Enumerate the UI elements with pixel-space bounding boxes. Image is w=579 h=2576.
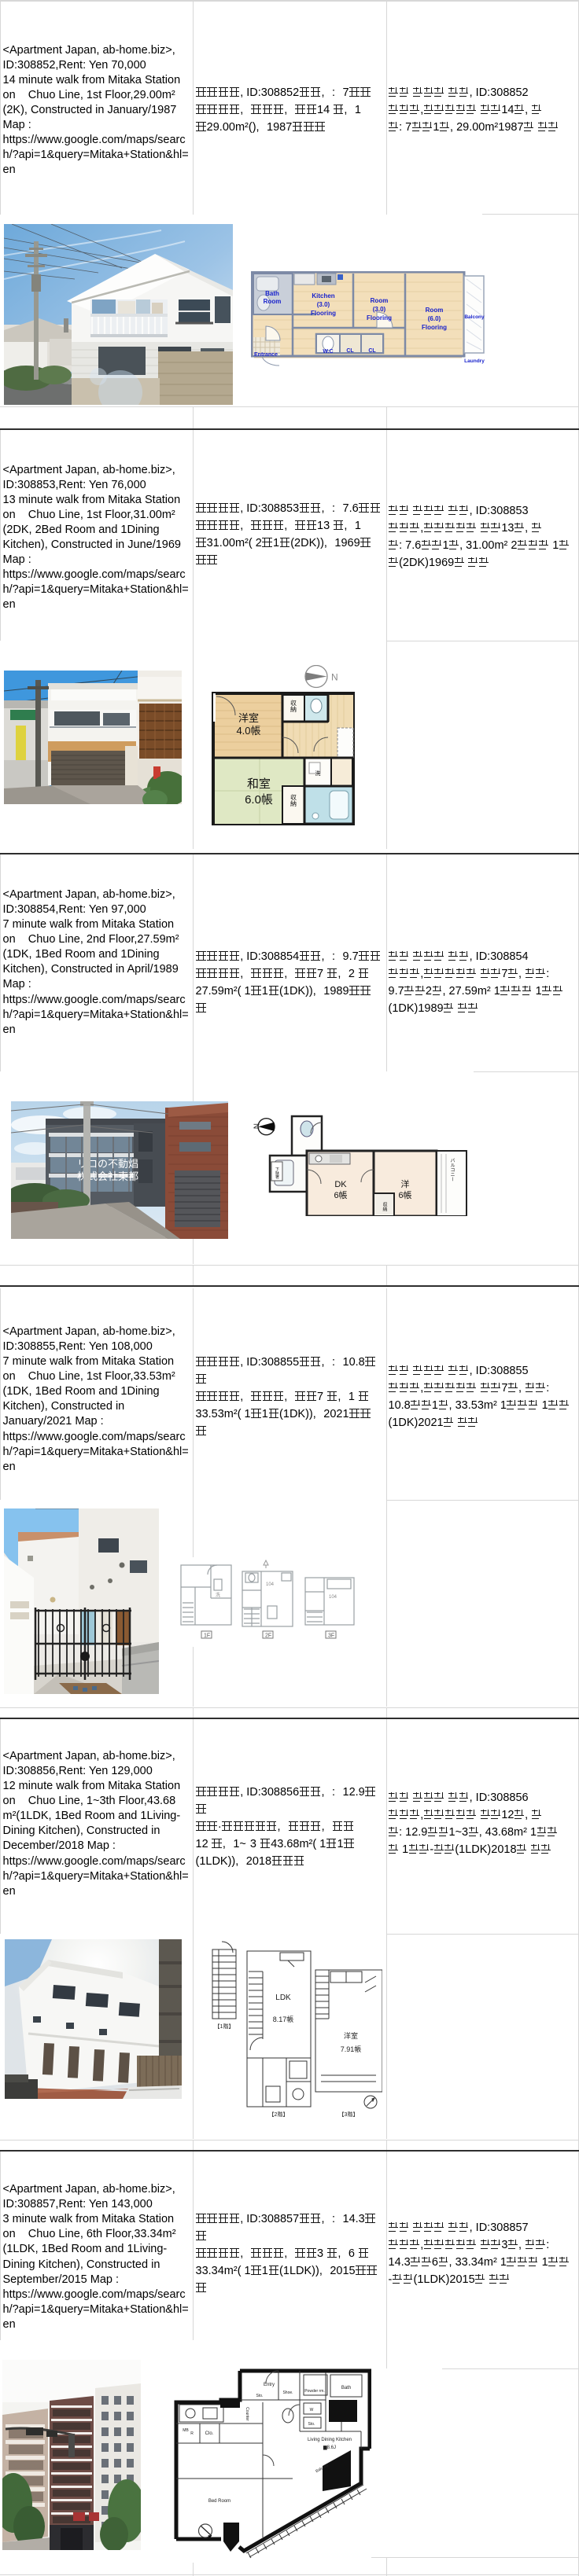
svg-text:LDK: LDK	[275, 1994, 291, 2002]
svg-text:▆8.6J: ▆8.6J	[323, 2446, 336, 2450]
svg-text:下駄箸: 下駄箸	[275, 1167, 279, 1180]
svg-text:Bed Room: Bed Room	[208, 2499, 230, 2504]
svg-text:Sto.: Sto.	[256, 2394, 264, 2398]
svg-text:【2階】: 【2階】	[269, 2111, 289, 2118]
svg-text:【1階】: 【1階】	[215, 2023, 234, 2030]
svg-text:洋: 洋	[401, 1178, 410, 1189]
svg-text:N: N	[252, 1123, 260, 1129]
svg-text:収納: 収納	[382, 1202, 387, 1212]
svg-text:1F: 1F	[204, 1633, 210, 1639]
svg-text:Powder rm.: Powder rm.	[304, 2389, 325, 2394]
svg-text:N: N	[331, 672, 338, 683]
svg-text:CL: CL	[368, 348, 376, 354]
svg-text:Bath: Bath	[265, 290, 279, 297]
svg-text:Kitchen: Kitchen	[312, 292, 334, 299]
svg-text:2F: 2F	[265, 1633, 271, 1639]
svg-text:Room: Room	[426, 307, 444, 314]
svg-text:Laundry: Laundry	[464, 358, 485, 364]
svg-text:Entry: Entry	[264, 2383, 275, 2387]
svg-text:(3.0): (3.0)	[317, 301, 330, 308]
svg-text:Sto.: Sto.	[308, 2422, 315, 2427]
svg-text:7.91帳: 7.91帳	[341, 2045, 362, 2053]
svg-text:3F: 3F	[328, 1633, 334, 1639]
svg-text:MB: MB	[183, 2428, 189, 2433]
svg-text:6.0帳: 6.0帳	[245, 793, 273, 807]
svg-text:4.0帳: 4.0帳	[236, 725, 260, 737]
svg-text:Balcony: Balcony	[464, 314, 485, 320]
svg-text:DK: DK	[334, 1180, 347, 1189]
svg-text:洋室: 洋室	[344, 2031, 358, 2040]
svg-text:【3階】: 【3階】	[339, 2111, 359, 2118]
svg-text:R: R	[190, 2431, 194, 2436]
svg-text:Counter: Counter	[245, 2407, 249, 2421]
svg-text:Room: Room	[371, 297, 389, 304]
svg-text:収納: 収納	[290, 793, 297, 807]
svg-text:Bath: Bath	[341, 2386, 351, 2390]
svg-text:収納: 収納	[290, 699, 297, 713]
svg-text:(3.0): (3.0)	[373, 306, 386, 313]
svg-text:和室: 和室	[247, 777, 271, 791]
svg-text:Shoe.: Shoe.	[282, 2390, 293, 2395]
svg-text:洋室: 洋室	[238, 712, 259, 724]
svg-text:Clo.: Clo.	[205, 2431, 214, 2436]
svg-text:6帳: 6帳	[334, 1189, 347, 1200]
svg-text:洗: 洗	[315, 770, 321, 777]
svg-text:Room: Room	[264, 298, 282, 305]
svg-text:104: 104	[329, 1595, 337, 1600]
svg-text:W: W	[310, 2408, 314, 2412]
svg-text:(6.0): (6.0)	[428, 315, 441, 322]
svg-text:Flooring: Flooring	[367, 314, 392, 322]
svg-text:8.17帳: 8.17帳	[273, 2015, 294, 2023]
svg-text:Flooring: Flooring	[422, 324, 447, 331]
svg-text:CL: CL	[346, 348, 354, 354]
svg-text:Flooring: Flooring	[311, 310, 336, 317]
svg-text:W.C: W.C	[323, 349, 333, 355]
svg-text:Entrance: Entrance	[254, 352, 278, 358]
svg-text:Living Dining Kitchen: Living Dining Kitchen	[308, 2438, 352, 2442]
svg-text:バルコニー: バルコニー	[449, 1158, 455, 1181]
svg-text:洗: 洗	[216, 1592, 220, 1598]
svg-text:104: 104	[266, 1582, 275, 1587]
svg-text:6帳: 6帳	[398, 1189, 411, 1200]
